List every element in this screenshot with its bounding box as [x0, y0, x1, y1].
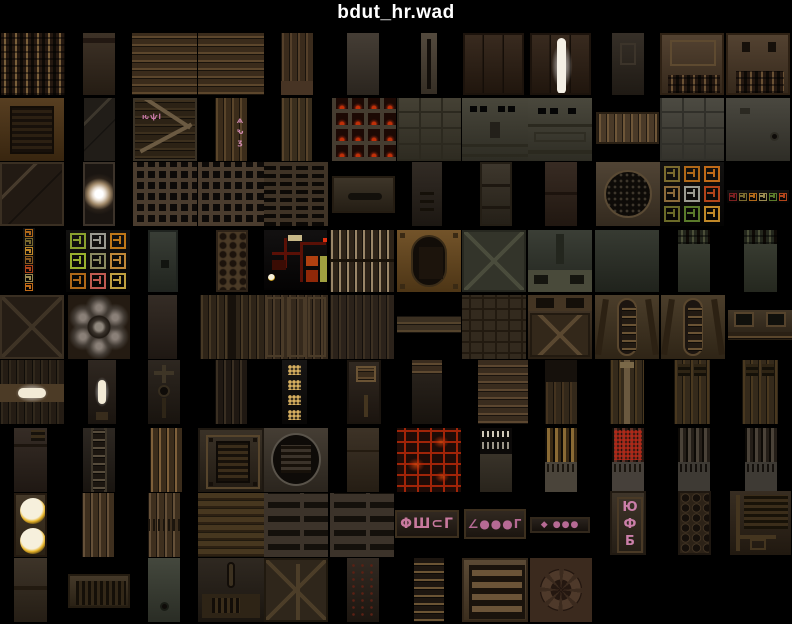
texture-detail: [462, 154, 528, 157]
texture-detail: [347, 450, 379, 452]
rune-glyph-grid: [727, 190, 789, 203]
texture-detail: [486, 33, 504, 45]
texture-corrugated-wall[interactable]: [132, 33, 197, 95]
texture-framed-vent[interactable]: [198, 428, 264, 492]
texture-detail: [158, 385, 170, 397]
texture-detail: [96, 364, 108, 372]
texture-detail: [419, 247, 443, 279]
texture-detail: [528, 295, 592, 311]
texture-detail: [330, 259, 394, 262]
texture-oval-vent[interactable]: [397, 230, 461, 292]
texture-square-grate[interactable]: [133, 162, 197, 226]
texture-conduit-panel[interactable]: [730, 491, 791, 555]
texture-detail: [253, 438, 257, 442]
texture-green-wall-base[interactable]: [528, 230, 592, 292]
texture-plank-column[interactable]: [281, 33, 313, 95]
texture-detail: [400, 284, 405, 289]
rune-glyph: [110, 273, 126, 289]
rune-glyph: [749, 193, 757, 201]
texture-square-grate-2[interactable]: [198, 162, 264, 226]
rune-glyph: [25, 229, 33, 237]
texture-bright-ribs-column[interactable]: [150, 428, 182, 492]
texture-detail: [209, 438, 213, 442]
rune-glyph: [90, 273, 106, 289]
texture-detail: [268, 274, 275, 281]
texture-plank-vent-column-2[interactable]: [742, 360, 778, 424]
texture-detail: [482, 206, 512, 209]
texture-rust-column[interactable]: [83, 33, 115, 95]
texture-speckle-column[interactable]: [347, 558, 379, 622]
texture-detail: [244, 598, 258, 612]
texture-detail: [202, 594, 260, 618]
texture-detail: [227, 562, 235, 588]
texture-detail: [272, 252, 302, 255]
texture-rune-strip-v[interactable]: [23, 228, 35, 292]
texture-circle-grille[interactable]: [596, 162, 660, 226]
texture-plate-column[interactable]: [612, 33, 644, 95]
texture-detail: [287, 297, 305, 357]
texture-detail: [624, 360, 630, 424]
texture-detail: [216, 441, 250, 483]
texture-ladder-column[interactable]: [83, 428, 115, 492]
texture-plank-pipe-column[interactable]: [610, 360, 644, 424]
texture-detail: [604, 170, 652, 218]
texture-green-door-column[interactable]: [148, 230, 178, 292]
texture-detail: [508, 106, 515, 112]
rune-glyph: [664, 186, 680, 202]
texture-carved-wall[interactable]: [397, 98, 461, 161]
texture-spine-panel-2[interactable]: [661, 295, 725, 359]
texture-detail: [472, 570, 522, 576]
texture-plain-column[interactable]: [347, 428, 379, 492]
texture-detail: [300, 242, 326, 245]
texture-corrugated-wall-2[interactable]: [198, 33, 264, 95]
wad-title: bdut_hr.wad: [0, 2, 792, 24]
texture-detail: [736, 495, 740, 551]
texture-rivet-panels[interactable]: [264, 295, 328, 359]
texture-xbrace-green-panel[interactable]: [462, 230, 526, 292]
texture-rod-vent-panel[interactable]: [198, 558, 264, 622]
rune-glyph: [739, 193, 747, 201]
texture-detail: [595, 299, 609, 355]
texture-detail: [688, 307, 702, 351]
texture-detail: [300, 242, 303, 282]
texture-detail: [20, 498, 46, 524]
rune-glyph: [729, 193, 737, 201]
texture-corner-vent-column[interactable]: [14, 428, 47, 492]
texture-shiny-planks[interactable]: [330, 230, 394, 292]
texture-detail: [271, 433, 321, 486]
texture-tangle-panel[interactable]: [462, 295, 526, 359]
texture-rune-board[interactable]: [660, 162, 724, 226]
texture-detail: [744, 230, 777, 244]
texture-detail: [742, 42, 750, 52]
texture-detail: [617, 298, 637, 356]
texture-detail: [545, 192, 577, 195]
texture-detail: [323, 238, 327, 242]
texture-wood-ribs-column-2[interactable]: [148, 493, 180, 557]
texture-detail: ЮФБ: [622, 499, 638, 551]
rune-glyph: [704, 186, 720, 202]
texture-lamp-column[interactable]: [14, 493, 47, 557]
texture-detail: [400, 233, 405, 238]
texture-detail: [431, 434, 451, 450]
texture-detail: [680, 464, 708, 472]
texture-detail: [750, 539, 766, 550]
texture-detail: [253, 482, 257, 486]
texture-green-column-b[interactable]: [744, 230, 777, 292]
texture-atlas-window: bdut_hr.wad ԋѱӏѧԅӡΦШ⊂Γ∠●●●Γ◆ ●●●ЮФБ: [0, 0, 792, 624]
texture-glow-column[interactable]: [88, 360, 116, 424]
texture-detail: [139, 123, 192, 154]
texture-rune-column-plate[interactable]: ЮФБ: [610, 491, 646, 555]
texture-detail: [536, 298, 554, 308]
texture-detail: [728, 332, 792, 339]
texture-detail: ԋѱӏ: [139, 112, 165, 122]
texture-detail: [614, 430, 642, 460]
texture-cross-panel[interactable]: [0, 295, 64, 359]
rune-glyph: [25, 238, 33, 246]
texture-detail: [420, 192, 434, 195]
texture-lava-grate[interactable]: [332, 98, 396, 161]
texture-detail: [212, 598, 240, 613]
texture-key-column-gold[interactable]: [545, 428, 577, 492]
texture-detail: [550, 108, 558, 114]
texture-key-column-red[interactable]: [612, 428, 644, 492]
texture-detail: [453, 233, 458, 238]
texture-detail: [668, 75, 720, 93]
texture-detail: [678, 230, 710, 244]
texture-detail: [538, 108, 546, 114]
texture-detail: [148, 519, 180, 531]
texture-detail: [420, 200, 434, 203]
texture-spine-panel[interactable]: [595, 295, 659, 359]
texture-detail: [557, 38, 566, 94]
texture-detail: [10, 106, 54, 154]
texture-detail: [469, 565, 525, 619]
texture-segment-column[interactable]: [480, 162, 512, 226]
texture-octagon-vent[interactable]: [264, 428, 328, 492]
texture-detail: [530, 313, 590, 357]
texture-big-vent[interactable]: [462, 558, 528, 622]
texture-detail: [320, 256, 327, 282]
texture-detail: [419, 165, 436, 182]
texture-stone-column[interactable]: [347, 33, 379, 95]
texture-detail: [620, 43, 636, 65]
texture-detail: [427, 39, 431, 89]
texture-detail: [556, 234, 564, 264]
texture-detail: [453, 284, 458, 289]
texture-lava-maze[interactable]: [397, 428, 461, 492]
texture-detail: [18, 388, 46, 398]
texture-detail: [740, 108, 750, 114]
texture-groove-planks[interactable]: [200, 295, 264, 359]
texture-detail: [746, 364, 758, 376]
texture-detail: [83, 38, 115, 43]
texture-detail: [678, 364, 690, 376]
texture-detail: [482, 184, 512, 187]
texture-detail: [296, 564, 300, 620]
texture-detail: [288, 380, 301, 390]
texture-detail: [349, 562, 377, 618]
texture-detail: [288, 365, 301, 375]
texture-pipe-top-column[interactable]: [412, 360, 442, 424]
texture-barcode-column[interactable]: [480, 428, 512, 492]
rune-glyph-grid: [66, 230, 130, 292]
texture-detail: [209, 482, 213, 486]
texture-detail: [547, 464, 575, 472]
texture-rune-plate-a[interactable]: ΦШ⊂Γ: [395, 510, 459, 538]
texture-cracked-panel[interactable]: [84, 98, 115, 161]
texture-detail: [568, 108, 576, 114]
texture-detail: [766, 312, 786, 327]
texture-detail: [528, 270, 592, 292]
texture-temple-machine[interactable]: [726, 33, 790, 95]
texture-detail: [498, 106, 505, 112]
texture-detail: [161, 260, 169, 268]
texture-detail: [160, 602, 169, 611]
texture-detail: [14, 586, 47, 590]
texture-detail: [528, 124, 592, 127]
texture-detail: [711, 299, 725, 355]
texture-detail: [96, 412, 108, 420]
texture-window-wall[interactable]: [462, 98, 528, 161]
rune-glyph: [70, 233, 86, 249]
texture-dark-column[interactable]: [545, 162, 577, 226]
texture-slot-panel-2[interactable]: [330, 493, 394, 557]
texture-detail: [76, 581, 126, 605]
rune-glyph-grid: [660, 162, 724, 226]
texture-detail: [462, 144, 528, 147]
texture-handle-plate[interactable]: [332, 176, 395, 213]
texture-rune-plate-b[interactable]: ∠●●●Γ: [464, 509, 526, 539]
texture-rune-board-2[interactable]: [66, 230, 130, 292]
texture-thin-strip[interactable]: [397, 316, 461, 333]
texture-shield-column[interactable]: [347, 360, 381, 424]
texture-detail: [614, 464, 642, 472]
texture-zigzag-wall[interactable]: [281, 98, 312, 161]
texture-detail: [534, 132, 586, 142]
texture-rib-block[interactable]: [596, 112, 659, 144]
texture-detail: [98, 380, 106, 404]
texture-leather-column[interactable]: [148, 295, 177, 359]
texture-detail: [288, 395, 301, 405]
texture-glow-band-panel[interactable]: [0, 360, 64, 424]
rune-glyph: [684, 166, 700, 182]
texture-bubble-column[interactable]: [678, 491, 711, 555]
texture-detail: [528, 150, 592, 154]
texture-glow-cross-lamp[interactable]: [83, 162, 115, 226]
texture-totem-column[interactable]: [412, 162, 442, 226]
texture-detail: [308, 297, 326, 357]
texture-detail: [412, 360, 442, 374]
texture-detail: [154, 371, 174, 375]
texture-detail: [31, 430, 45, 441]
texture-block-wall[interactable]: [660, 98, 724, 161]
texture-honeycomb-panel[interactable]: [216, 230, 248, 292]
rune-glyph: [769, 193, 777, 201]
texture-detail: [162, 398, 166, 418]
texture-seam-column[interactable]: [14, 558, 47, 622]
texture-petal-boss[interactable]: [68, 295, 130, 359]
rune-glyph: [779, 193, 787, 201]
texture-detail: [364, 395, 368, 417]
texture-light-door[interactable]: [530, 33, 591, 95]
texture-pipes-block[interactable]: [478, 360, 528, 424]
texture-detail: [490, 122, 500, 138]
texture-green-wall-flat[interactable]: [595, 230, 659, 292]
texture-detail: [472, 594, 522, 600]
texture-detail: [480, 428, 512, 454]
texture-detail: [570, 275, 584, 284]
texture-green-knob-column[interactable]: [148, 558, 180, 622]
texture-hatch-door[interactable]: [463, 33, 524, 95]
texture-detail: [622, 307, 636, 351]
texture-window-wall-2[interactable]: [528, 98, 592, 161]
texture-slot-panel[interactable]: [264, 493, 328, 557]
rune-glyph: [90, 253, 106, 269]
texture-detail: [348, 193, 382, 200]
texture-detail: [486, 87, 504, 95]
texture-strata-block[interactable]: [198, 493, 264, 557]
texture-wood-ribs-column[interactable]: [82, 493, 114, 557]
texture-detail: [744, 495, 788, 529]
rune-glyph: [70, 253, 86, 269]
texture-detail: [472, 606, 522, 612]
texture-plank-vent-column[interactable]: [674, 360, 710, 424]
texture-brace-panel[interactable]: [264, 558, 328, 622]
texture-detail: [266, 297, 284, 357]
rune-glyph: [684, 186, 700, 202]
rune-glyph: [110, 253, 126, 269]
texture-split-column[interactable]: [545, 360, 577, 424]
texture-detail: [411, 235, 447, 287]
texture-detail: [534, 275, 548, 284]
texture-detail: [288, 410, 301, 420]
texture-detail: [694, 364, 706, 376]
texture-detail: [683, 298, 703, 356]
texture-detail: [281, 445, 311, 473]
rune-glyph: [25, 265, 33, 273]
texture-detail: [306, 270, 318, 282]
texture-zigzag-column[interactable]: ѧԅӡ: [215, 98, 247, 161]
texture-rust-vent[interactable]: [0, 98, 64, 161]
rune-glyph: [704, 206, 720, 222]
texture-dark-planks[interactable]: [330, 295, 394, 359]
texture-detail: [762, 364, 774, 376]
texture-key-column-dark-2[interactable]: [745, 428, 777, 492]
texture-detail: [482, 442, 510, 449]
rune-glyph: [684, 206, 700, 222]
texture-detail: [272, 260, 286, 270]
rune-glyph: [110, 233, 126, 249]
texture-wide-vent[interactable]: [68, 574, 130, 608]
texture-detail: [472, 582, 522, 588]
texture-diag-panel[interactable]: [0, 162, 64, 226]
texture-detail: [645, 299, 659, 355]
texture-detail: [14, 444, 47, 447]
texture-rune-strip-c[interactable]: ◆ ●●●: [530, 517, 590, 533]
texture-detail: [93, 430, 105, 490]
texture-detail: [566, 298, 584, 308]
texture-rosette[interactable]: [530, 558, 592, 622]
texture-detail: [482, 431, 510, 437]
texture-detail: [770, 132, 779, 141]
texture-anchor-column[interactable]: [148, 360, 180, 424]
texture-detail: [288, 235, 302, 241]
rune-glyph: [664, 166, 680, 182]
texture-glow-dots-column[interactable]: [282, 360, 307, 424]
texture-detail: [480, 106, 487, 112]
texture-flat-wall[interactable]: [726, 98, 790, 161]
rune-glyph: [704, 166, 720, 182]
texture-slot-jamb[interactable]: [421, 33, 437, 94]
texture-key-column-dark[interactable]: [678, 428, 710, 492]
texture-detail: [228, 295, 236, 359]
texture-detail: [545, 360, 577, 382]
texture-detail: [734, 312, 754, 327]
texture-detail: [736, 71, 784, 93]
texture-rib-column[interactable]: [215, 360, 247, 424]
rune-glyph-grid: [23, 228, 35, 292]
texture-detail: [405, 456, 427, 474]
rune-glyph: [25, 247, 33, 255]
texture-green-column-a[interactable]: [678, 230, 710, 292]
texture-xvent-panel[interactable]: [528, 295, 592, 359]
texture-detail: [620, 362, 634, 368]
texture-terminal-panel[interactable]: [264, 230, 327, 290]
texture-detail: [306, 256, 318, 266]
texture-detail: [356, 366, 376, 382]
texture-detail: [661, 299, 675, 355]
texture-rung-column[interactable]: [414, 558, 444, 622]
texture-detail: [470, 106, 477, 112]
texture-detail: [281, 81, 313, 95]
texture-detail: [20, 528, 46, 554]
rune-glyph: [25, 274, 33, 282]
texture-strut-panel[interactable]: ԋѱӏ: [133, 98, 197, 161]
texture-detail: ѧԅӡ: [235, 110, 245, 154]
rune-glyph: [664, 206, 680, 222]
rune-glyph: [90, 233, 106, 249]
texture-detail: [747, 464, 775, 472]
texture-detail: [670, 40, 716, 66]
rune-glyph: [25, 256, 33, 264]
texture-vent-band[interactable]: [728, 310, 792, 340]
texture-detail: [420, 208, 434, 211]
texture-organ-pillars[interactable]: [1, 33, 65, 95]
texture-detail: [768, 42, 776, 52]
texture-slot-grate[interactable]: [264, 162, 328, 226]
texture-detail: [433, 470, 451, 484]
texture-rune-strip[interactable]: [727, 190, 789, 203]
rune-glyph: [70, 273, 86, 289]
texture-temple-facade[interactable]: [660, 33, 724, 95]
rune-glyph: [25, 283, 33, 291]
rune-glyph: [759, 193, 767, 201]
